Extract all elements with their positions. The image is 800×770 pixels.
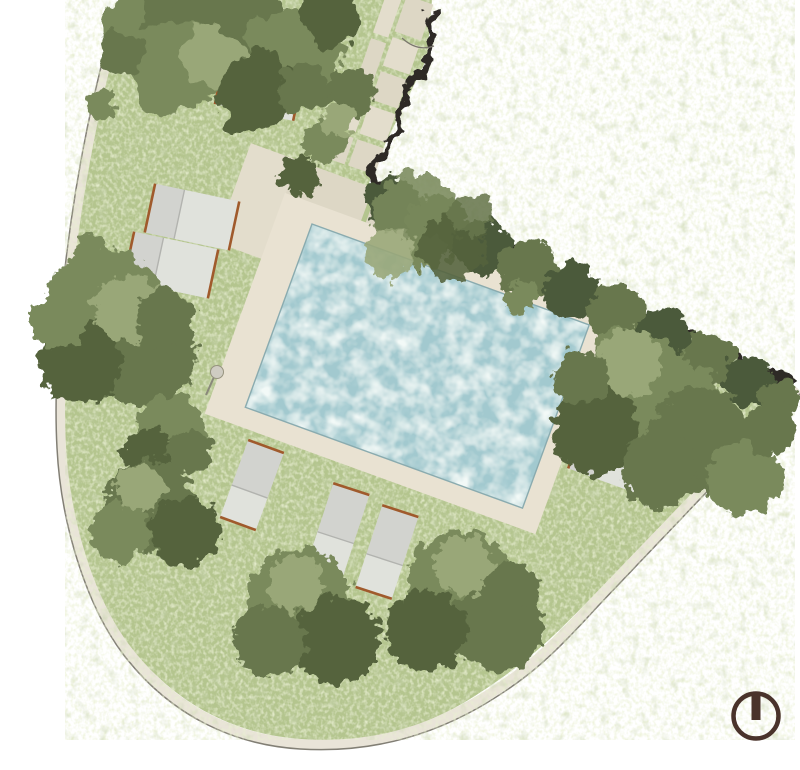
tree-overhanging-pool (365, 172, 492, 281)
north-indicator-icon (734, 694, 779, 739)
site-plan-svg (0, 0, 800, 770)
site-plan-canvas (0, 0, 800, 770)
